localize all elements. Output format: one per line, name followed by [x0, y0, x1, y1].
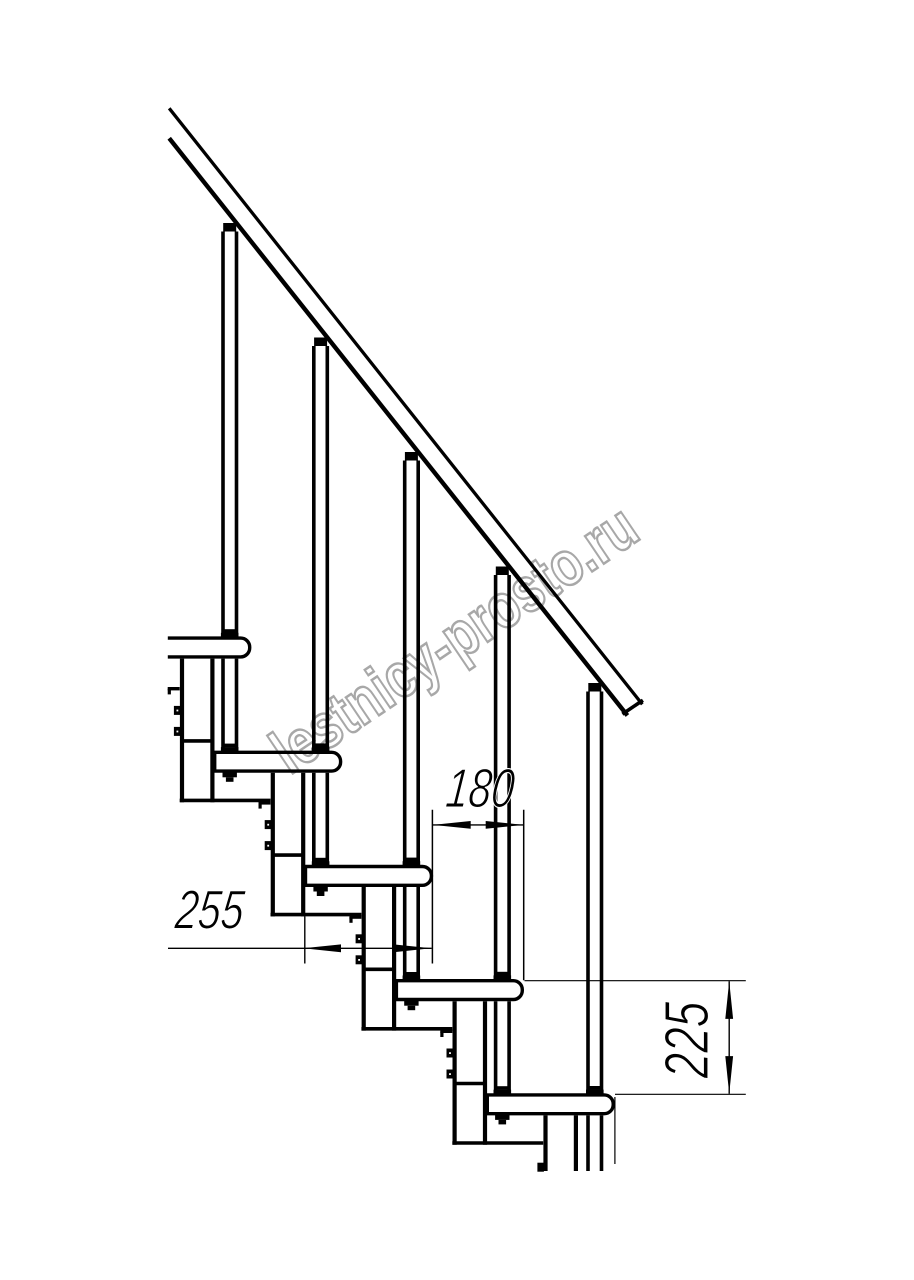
svg-text:255: 255 — [172, 880, 248, 941]
svg-text:180: 180 — [443, 758, 517, 819]
svg-text:225: 225 — [652, 1001, 721, 1079]
